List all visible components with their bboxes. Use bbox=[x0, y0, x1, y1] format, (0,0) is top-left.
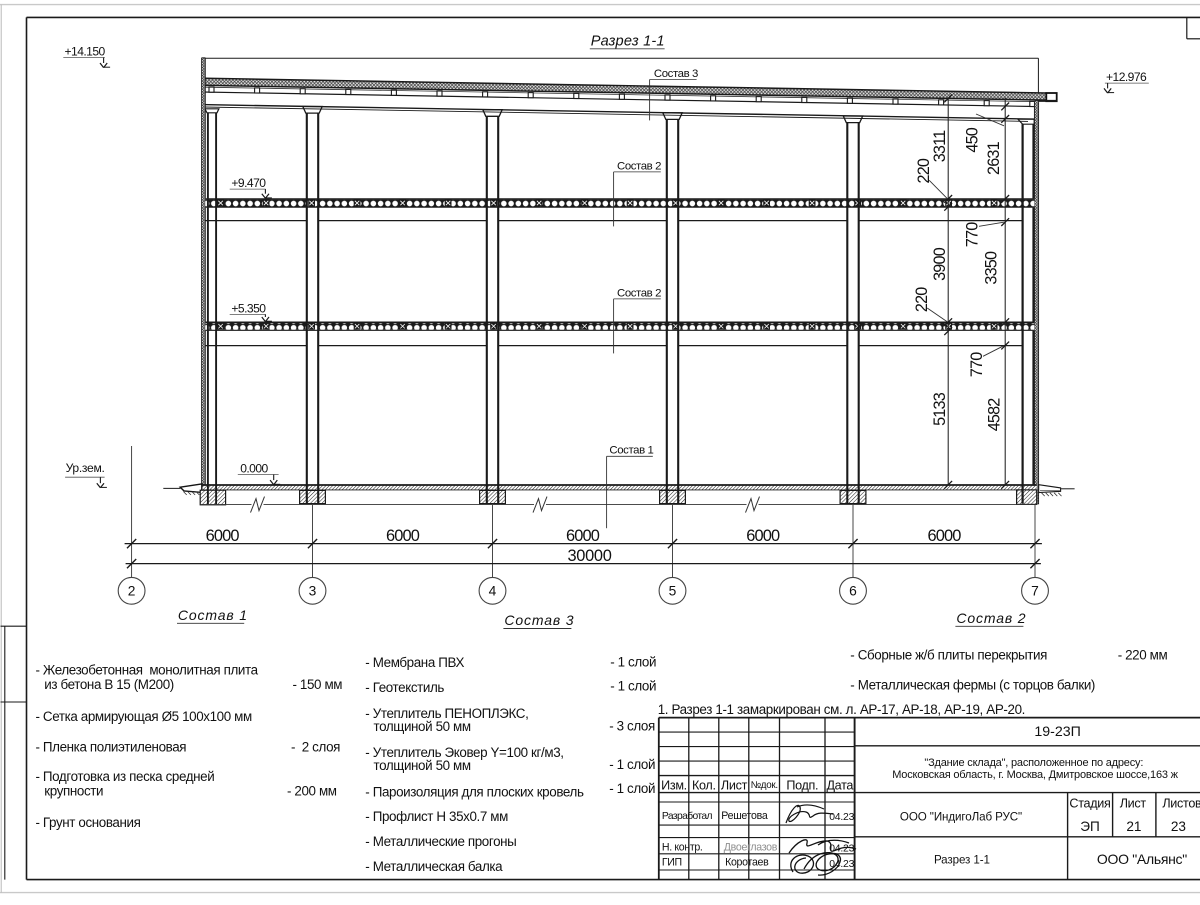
svg-text:толщиной 50 мм: толщиной 50 мм bbox=[374, 758, 471, 773]
svg-text:Разрез 1-1: Разрез 1-1 bbox=[934, 853, 990, 866]
svg-text:- Профлист Н 35х0.7 мм: - Профлист Н 35х0.7 мм bbox=[365, 809, 508, 824]
svg-text:5133: 5133 bbox=[931, 392, 949, 426]
svg-text:- Металлические прогоны: - Металлические прогоны bbox=[365, 834, 516, 849]
svg-text:3: 3 bbox=[309, 584, 317, 599]
svg-text:ООО "ИндигоЛаб РУС": ООО "ИндигоЛаб РУС" bbox=[900, 810, 1022, 823]
svg-text:1. Разрез 1-1 замаркирован см.: 1. Разрез 1-1 замаркирован см. л. АР-17,… bbox=[658, 702, 1025, 717]
svg-text:30000: 30000 bbox=[567, 547, 611, 565]
svg-text:- 1 слой: - 1 слой bbox=[610, 655, 656, 670]
svg-text:19-23П: 19-23П bbox=[1034, 724, 1080, 740]
svg-text:Состав 1: Состав 1 bbox=[178, 607, 248, 623]
svg-text:Ур.зем.: Ур.зем. bbox=[66, 461, 105, 475]
svg-text:6: 6 bbox=[849, 584, 857, 599]
svg-text:Решетова: Решетова bbox=[721, 810, 768, 822]
svg-text:5: 5 bbox=[669, 584, 677, 599]
svg-text:ГИП: ГИП bbox=[662, 857, 682, 869]
svg-text:6000: 6000 bbox=[386, 527, 420, 545]
svg-text:- 1 слой: - 1 слой bbox=[609, 781, 655, 796]
svg-text:Лист: Лист bbox=[721, 778, 748, 792]
svg-text:Н. контр.: Н. контр. bbox=[662, 841, 703, 853]
svg-text:770: 770 bbox=[963, 222, 981, 247]
svg-text:"Здание склада", расположенное: "Здание склада", расположенное по адресу… bbox=[924, 757, 1143, 769]
svg-text:Разрез 1-1: Разрез 1-1 bbox=[591, 33, 665, 49]
svg-text:- Металлическая фермы (с торцо: - Металлическая фермы (с торцов балки) bbox=[850, 677, 1095, 692]
svg-text:Состав 2: Состав 2 bbox=[617, 160, 661, 172]
svg-text:4: 4 bbox=[489, 584, 497, 599]
svg-text:Изм.: Изм. bbox=[661, 778, 687, 792]
svg-text:Двоеглазов: Двоеглазов bbox=[724, 841, 778, 853]
svg-text:23: 23 bbox=[1171, 819, 1186, 834]
svg-text:- 2 слоя: - 2 слоя bbox=[291, 740, 340, 755]
svg-text:3350: 3350 bbox=[982, 251, 1000, 285]
svg-text:+12.976: +12.976 bbox=[1106, 70, 1147, 84]
svg-text:Стадия: Стадия bbox=[1069, 796, 1110, 810]
svg-text:6000: 6000 bbox=[566, 527, 600, 545]
svg-text:6000: 6000 bbox=[928, 527, 962, 545]
svg-text:Разработал: Разработал bbox=[662, 810, 713, 822]
svg-text:- Грунт основания: - Грунт основания bbox=[36, 815, 141, 830]
svg-text:- Геотекстиль: - Геотекстиль bbox=[365, 680, 444, 695]
svg-text:+5.350: +5.350 bbox=[231, 302, 266, 316]
svg-text:- Сборные ж/б плиты перекрытия: - Сборные ж/б плиты перекрытия bbox=[850, 648, 1047, 663]
svg-text:Состав 2: Состав 2 bbox=[617, 287, 661, 299]
svg-text:- Подготовка из песка средней: - Подготовка из песка средней bbox=[36, 769, 215, 784]
svg-text:ООО "Альянс": ООО "Альянс" bbox=[1097, 851, 1187, 867]
svg-text:6000: 6000 bbox=[746, 527, 780, 545]
svg-text:Лист: Лист bbox=[1120, 796, 1147, 810]
svg-text:4582: 4582 bbox=[986, 398, 1004, 432]
svg-text:- 1 слой: - 1 слой bbox=[609, 757, 655, 772]
svg-text:толщиной 50 мм: толщиной 50 мм bbox=[374, 719, 471, 734]
svg-text:7: 7 bbox=[1031, 584, 1039, 599]
svg-text:2631: 2631 bbox=[985, 141, 1003, 175]
svg-text:+9.470: +9.470 bbox=[231, 176, 266, 190]
svg-text:Подп.: Подп. bbox=[786, 778, 818, 792]
svg-text:- Пароизоляция для плоских кро: - Пароизоляция для плоских кровель bbox=[365, 784, 584, 799]
svg-text:- 220 мм: - 220 мм bbox=[1118, 648, 1168, 663]
svg-text:Коротаев: Коротаев bbox=[725, 857, 769, 869]
svg-text:Состав 2: Состав 2 bbox=[956, 610, 1026, 626]
svg-text:Состав 1: Состав 1 bbox=[609, 445, 653, 457]
svg-text:- Металлическая балка: - Металлическая балка bbox=[365, 859, 503, 874]
svg-text:21: 21 bbox=[1126, 819, 1141, 834]
svg-text:- 1 слой: - 1 слой bbox=[610, 678, 656, 693]
svg-text:- 150 мм: - 150 мм bbox=[293, 677, 343, 692]
svg-text:Московская область, г. Москва,: Московская область, г. Москва, Дмитровск… bbox=[892, 769, 1178, 781]
svg-text:Кол.: Кол. bbox=[692, 778, 716, 792]
svg-text:- Мембрана ПВХ: - Мембрана ПВХ bbox=[365, 655, 464, 670]
svg-text:6000: 6000 bbox=[206, 527, 240, 545]
svg-text:Состав 3: Состав 3 bbox=[654, 68, 698, 80]
svg-text:2: 2 bbox=[128, 584, 136, 599]
svg-text:- Пленка полиэтиленовая: - Пленка полиэтиленовая bbox=[36, 740, 187, 755]
svg-text:+14.150: +14.150 bbox=[65, 45, 106, 59]
svg-text:№док.: №док. bbox=[751, 780, 778, 791]
svg-text:из бетона В 15 (М200): из бетона В 15 (М200) bbox=[44, 677, 174, 692]
svg-text:Дата: Дата bbox=[826, 778, 853, 792]
svg-text:3311: 3311 bbox=[931, 130, 949, 162]
svg-text:Состав 3: Состав 3 bbox=[504, 612, 574, 628]
svg-text:450: 450 bbox=[964, 127, 982, 152]
svg-text:- 200 мм: - 200 мм bbox=[287, 784, 337, 799]
svg-text:Листов: Листов bbox=[1162, 796, 1200, 810]
svg-text:ЭП: ЭП bbox=[1080, 819, 1100, 834]
svg-text:0.000: 0.000 bbox=[240, 462, 268, 476]
svg-text:- 3 слоя: - 3 слоя bbox=[609, 718, 655, 733]
svg-text:220: 220 bbox=[915, 158, 933, 183]
svg-text:крупности: крупности bbox=[44, 784, 103, 799]
svg-text:- Железобетонная монолитная п: - Железобетонная монолитная плита bbox=[36, 663, 259, 678]
svg-text:- Сетка армирующая Ø5 100х100: - Сетка армирующая Ø5 100х100 мм bbox=[36, 709, 252, 724]
svg-text:3900: 3900 bbox=[931, 247, 949, 281]
